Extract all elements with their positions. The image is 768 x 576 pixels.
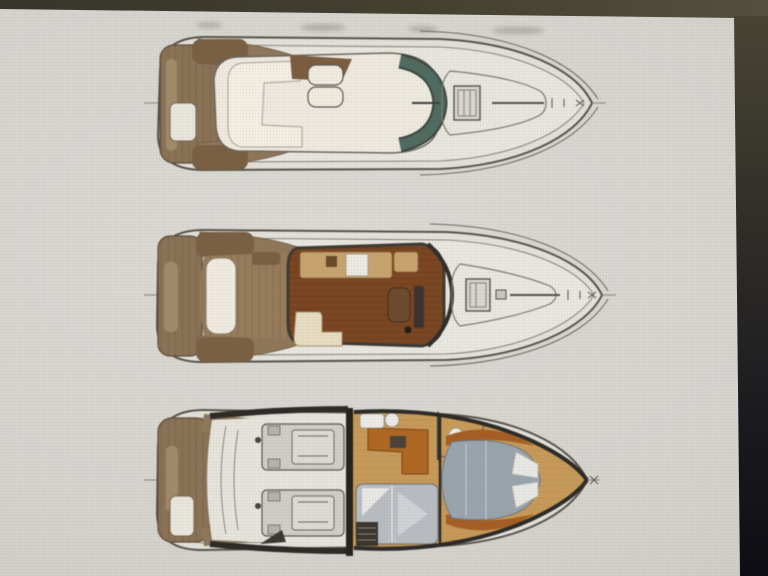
foredeck-hatch xyxy=(454,86,480,120)
photo-smudge xyxy=(492,27,544,34)
bulkhead xyxy=(346,408,353,556)
side-counter xyxy=(394,252,418,272)
engine-room xyxy=(207,409,348,551)
flybridge-deck-plan xyxy=(140,23,610,187)
helm-seat xyxy=(388,288,410,322)
photo-smudge xyxy=(408,26,438,32)
swim-platform xyxy=(158,236,202,356)
sink xyxy=(385,413,399,427)
engine-starboard xyxy=(255,490,344,536)
engine-port xyxy=(255,424,344,470)
companionway-steps xyxy=(356,522,378,546)
galley-stove xyxy=(326,256,337,267)
cockpit-bench xyxy=(206,258,236,334)
aft-locker xyxy=(196,337,254,362)
helm-wheel xyxy=(405,327,412,334)
galley-appliance xyxy=(346,254,368,276)
photo-smudge xyxy=(196,22,222,28)
saloon xyxy=(288,244,444,346)
helm-console xyxy=(414,286,424,328)
wet-bar xyxy=(252,252,280,265)
lower-deck-plan xyxy=(140,396,605,570)
accommodation xyxy=(353,411,587,549)
photo-smudge xyxy=(300,24,346,31)
stove xyxy=(390,436,406,448)
main-deck-plan xyxy=(140,218,620,376)
stern-hatch xyxy=(170,103,196,141)
swim-platform xyxy=(158,418,210,542)
aft-locker xyxy=(196,232,254,257)
stern-locker xyxy=(170,496,194,536)
photo-of-screen xyxy=(0,0,768,576)
island-berth xyxy=(442,440,540,520)
counter-white xyxy=(360,414,384,428)
cockpit xyxy=(200,252,292,340)
foredeck-hatch xyxy=(466,279,490,311)
